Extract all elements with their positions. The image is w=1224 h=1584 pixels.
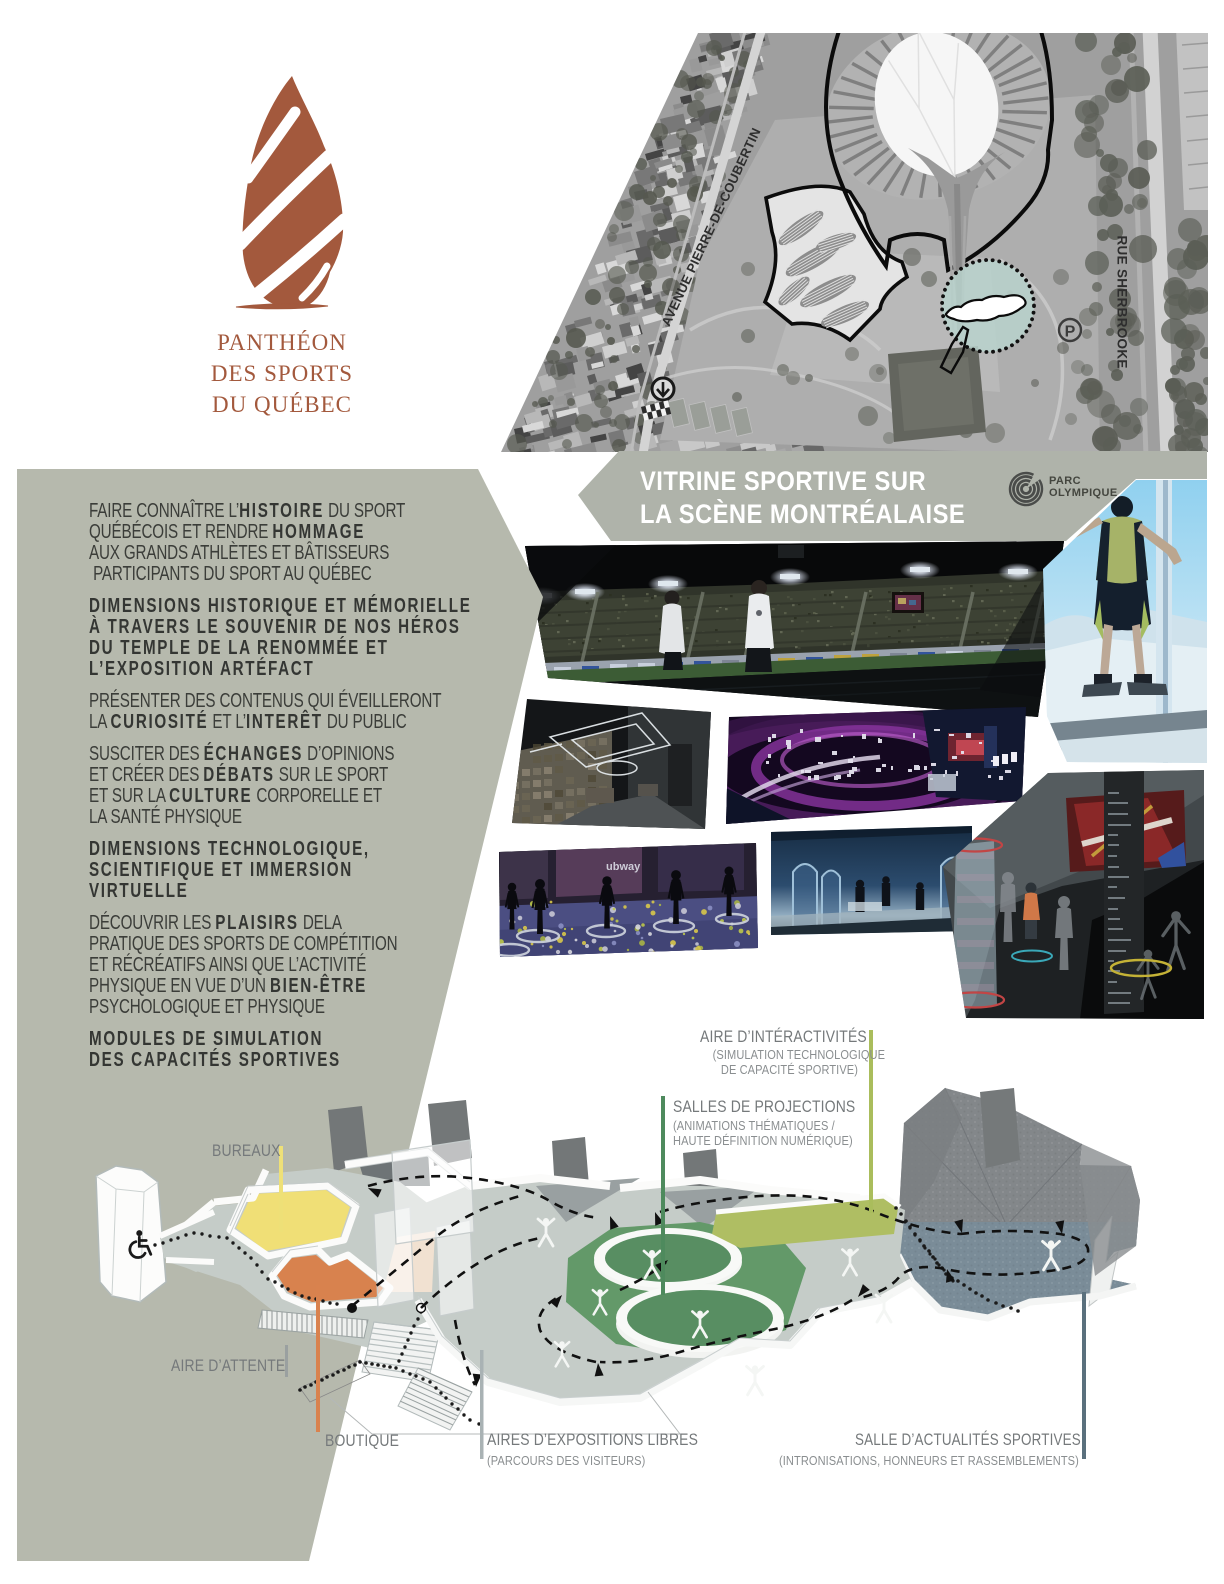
svg-text:P: P	[1065, 324, 1076, 341]
svg-text:ubway: ubway	[606, 861, 641, 873]
